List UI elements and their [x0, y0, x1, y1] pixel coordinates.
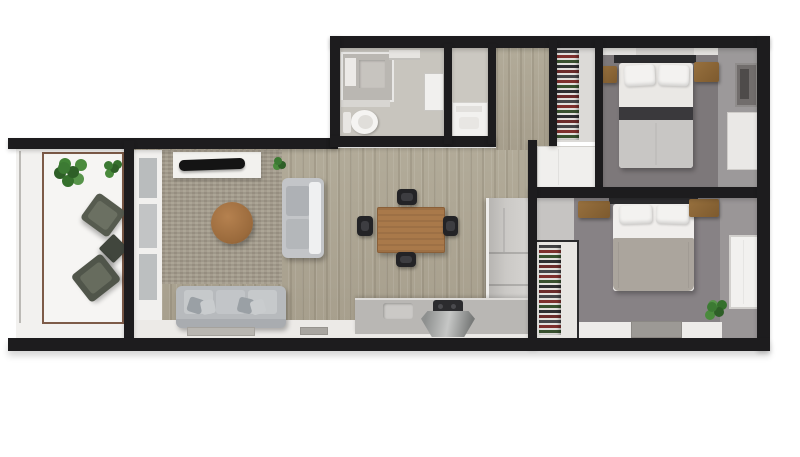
wall-hall-bedroom2-left: [528, 140, 537, 348]
console-plant-icon: [270, 154, 286, 170]
bed-pillow: [619, 204, 653, 224]
wall-bathroom-bottom: [330, 136, 496, 147]
closet2-wardrobe: [535, 240, 579, 342]
bed-accent-band: [619, 107, 693, 120]
nightstand: [694, 62, 719, 82]
bed-pillow: [656, 204, 690, 224]
wall-hall-closet-divider: [549, 40, 557, 146]
washing-machine: [452, 102, 488, 137]
wall-bath-laundry-divider: [444, 44, 452, 144]
dining-chair: [357, 216, 373, 236]
tv-icon: [179, 158, 245, 171]
bedroom1-window: [735, 63, 758, 107]
three-seat-sofa: [176, 286, 286, 328]
window-pane: [139, 158, 157, 198]
nightstand: [689, 199, 719, 217]
toilet-icon: [343, 110, 379, 135]
bedroom2-plant-icon: [699, 296, 727, 324]
floor-plan-render: [0, 0, 800, 457]
dining-chair: [396, 252, 416, 267]
bedroom1-headboard: [614, 55, 696, 63]
bed-pillow: [623, 64, 655, 87]
balcony-rail-line: [19, 151, 21, 323]
wall-bathroom-left: [330, 36, 340, 146]
kitchen-sink: [383, 303, 413, 319]
dining-chair: [397, 189, 417, 205]
sofa-pillow: [200, 299, 217, 316]
window-pane: [139, 204, 157, 248]
nightstand: [578, 201, 610, 218]
dining-table: [377, 207, 445, 253]
plant-large-icon: [48, 154, 88, 194]
coffee-table-round: [211, 202, 253, 244]
closet2-hanging-clothes: [539, 245, 561, 335]
kitchen-tall-cabinet-fridge: [486, 198, 531, 310]
living-west-windows: [134, 150, 162, 338]
wall-bedroom-divider: [528, 187, 768, 198]
shower-enclosure: [341, 52, 394, 102]
plant-small-icon: [98, 156, 122, 180]
bedroom2-duvet: [613, 238, 694, 291]
shower-bench: [345, 58, 356, 86]
window-pane: [139, 254, 157, 300]
dining-chair: [443, 216, 458, 236]
closet1-hanging-clothes: [557, 50, 579, 140]
bathroom-wall-cabinet: [424, 73, 444, 111]
wall-balcony-living-divider: [124, 141, 134, 346]
wall-bottom-outer: [8, 338, 770, 351]
doormat: [300, 327, 328, 335]
bedroom1-door-panel: [727, 112, 760, 170]
bathroom-shelf: [341, 100, 390, 107]
wall-laundry-hall-divider: [488, 44, 496, 144]
room-hallway: [496, 46, 549, 150]
closet2-upper-wall: [537, 198, 574, 240]
closet1-low-cabinet: [537, 146, 596, 188]
wall-closet-bedroom1-divider: [595, 40, 603, 190]
loveseat: [282, 178, 324, 258]
wall-right-outer: [757, 36, 770, 351]
bed-pillow: [658, 64, 690, 86]
wall-top-left-block: [8, 138, 338, 149]
nightstand: [602, 66, 617, 83]
bedroom2-rug: [631, 321, 682, 338]
doormat: [187, 327, 255, 336]
loveseat-throw-blanket: [309, 182, 321, 254]
towel-rail: [389, 50, 420, 60]
